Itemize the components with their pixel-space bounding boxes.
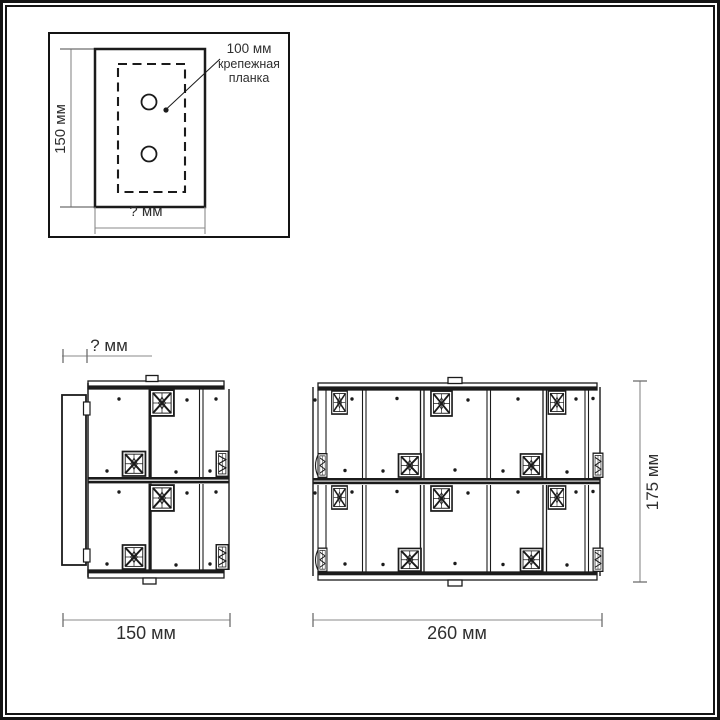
crystal-half-icon [593,453,603,477]
side-crystals [123,390,229,569]
mounting-plate-outline [95,49,205,207]
crystal-half-icon [216,451,228,476]
front-width-dimension-label: 260 мм [407,623,507,644]
front-height-dimension-label: 175 мм [643,442,663,522]
inset-plate-label: крепежная планка [204,58,294,85]
crystal-icon [548,391,565,414]
side-view-drawing [55,330,245,660]
crystal-icon [520,548,542,571]
crystal-icon [548,486,565,509]
crystal-half-icon [593,548,603,571]
wall-plate-side [62,395,86,565]
plate-label-line2: планка [229,71,270,85]
side-row-divider [88,477,229,483]
edge-crystal-bulges [316,453,599,572]
crystal-icon [520,454,542,477]
inset-hole-spacing-label: 100 мм [209,41,289,56]
crystal-half-icon [318,548,327,571]
front-panel-dividers [318,390,589,572]
crystal-icon [150,390,174,416]
crystal-half-icon [318,454,327,478]
side-width-dimension-label: 150 мм [96,623,196,644]
inset-height-dimension-label: 150 мм [52,89,70,169]
crystal-icon [123,452,146,476]
front-view-drawing [300,370,660,660]
crystal-icon [399,548,421,571]
crystal-icon [332,391,348,414]
crystal-icon [332,486,348,509]
front-crystals-row1 [318,391,603,477]
crystal-icon [150,485,174,511]
crystal-half-icon [216,545,228,570]
inset-width-dimension-label: ? мм [106,203,186,220]
dimension-diagram-page: { "colors": { "line": "#1b1b1b", "dimens… [0,0,720,720]
side-depth-dimension-label: ? мм [79,336,139,356]
front-row-divider [313,478,600,484]
crystal-icon [431,486,452,511]
plate-label-line1: крепежная [218,57,280,71]
crystal-icon [399,454,421,477]
front-crystals-row2 [318,486,603,571]
crystal-icon [431,391,452,416]
crystal-icon [123,545,146,569]
